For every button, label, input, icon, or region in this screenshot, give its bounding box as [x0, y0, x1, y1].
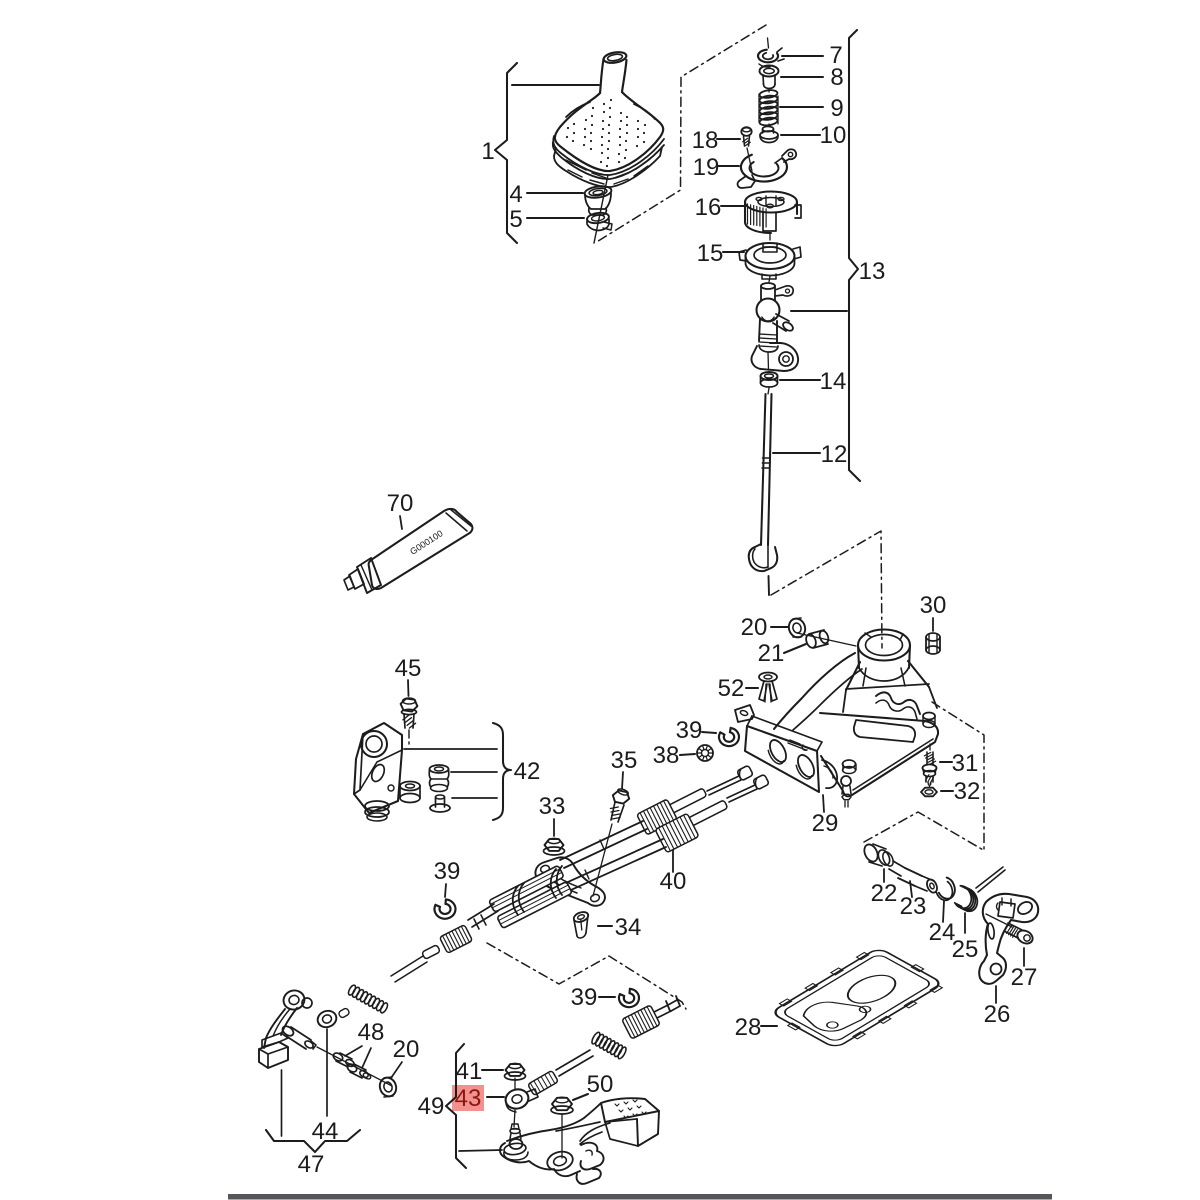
svg-text:49: 49	[418, 1093, 445, 1120]
svg-text:4: 4	[509, 181, 522, 208]
svg-text:70: 70	[387, 490, 414, 517]
svg-text:31: 31	[952, 750, 979, 777]
svg-text:50: 50	[587, 1071, 614, 1098]
svg-text:45: 45	[395, 655, 422, 682]
svg-text:23: 23	[900, 893, 927, 920]
svg-text:13: 13	[859, 258, 886, 285]
svg-text:30: 30	[920, 592, 947, 619]
svg-text:48: 48	[358, 1019, 385, 1046]
svg-text:39: 39	[571, 984, 598, 1011]
svg-text:27: 27	[1011, 964, 1038, 991]
svg-text:32: 32	[954, 778, 981, 805]
svg-text:52: 52	[718, 675, 745, 702]
svg-text:14: 14	[820, 368, 847, 395]
svg-text:19: 19	[693, 154, 720, 181]
svg-text:44: 44	[312, 1118, 339, 1145]
svg-text:42: 42	[514, 758, 541, 785]
svg-text:1: 1	[481, 138, 494, 165]
svg-text:35: 35	[611, 747, 638, 774]
svg-text:18: 18	[692, 127, 719, 154]
svg-text:12: 12	[821, 441, 848, 468]
svg-text:5: 5	[509, 206, 522, 233]
svg-text:28: 28	[735, 1014, 762, 1041]
svg-text:9: 9	[830, 95, 843, 122]
svg-text:41: 41	[456, 1058, 483, 1085]
svg-text:8: 8	[830, 64, 843, 91]
svg-text:38: 38	[653, 742, 680, 769]
svg-text:20: 20	[393, 1036, 420, 1063]
svg-text:15: 15	[697, 240, 724, 267]
svg-text:39: 39	[434, 858, 461, 885]
svg-text:25: 25	[952, 936, 979, 963]
svg-text:16: 16	[695, 194, 722, 221]
svg-text:47: 47	[298, 1151, 325, 1178]
svg-text:29: 29	[812, 810, 839, 837]
svg-text:26: 26	[984, 1001, 1011, 1028]
svg-text:43: 43	[455, 1085, 482, 1112]
svg-text:10: 10	[820, 122, 847, 149]
svg-text:33: 33	[539, 793, 566, 820]
svg-text:20: 20	[741, 614, 768, 641]
svg-text:34: 34	[615, 914, 642, 941]
svg-text:21: 21	[758, 640, 785, 667]
svg-text:39: 39	[676, 717, 703, 744]
svg-text:22: 22	[871, 880, 898, 907]
